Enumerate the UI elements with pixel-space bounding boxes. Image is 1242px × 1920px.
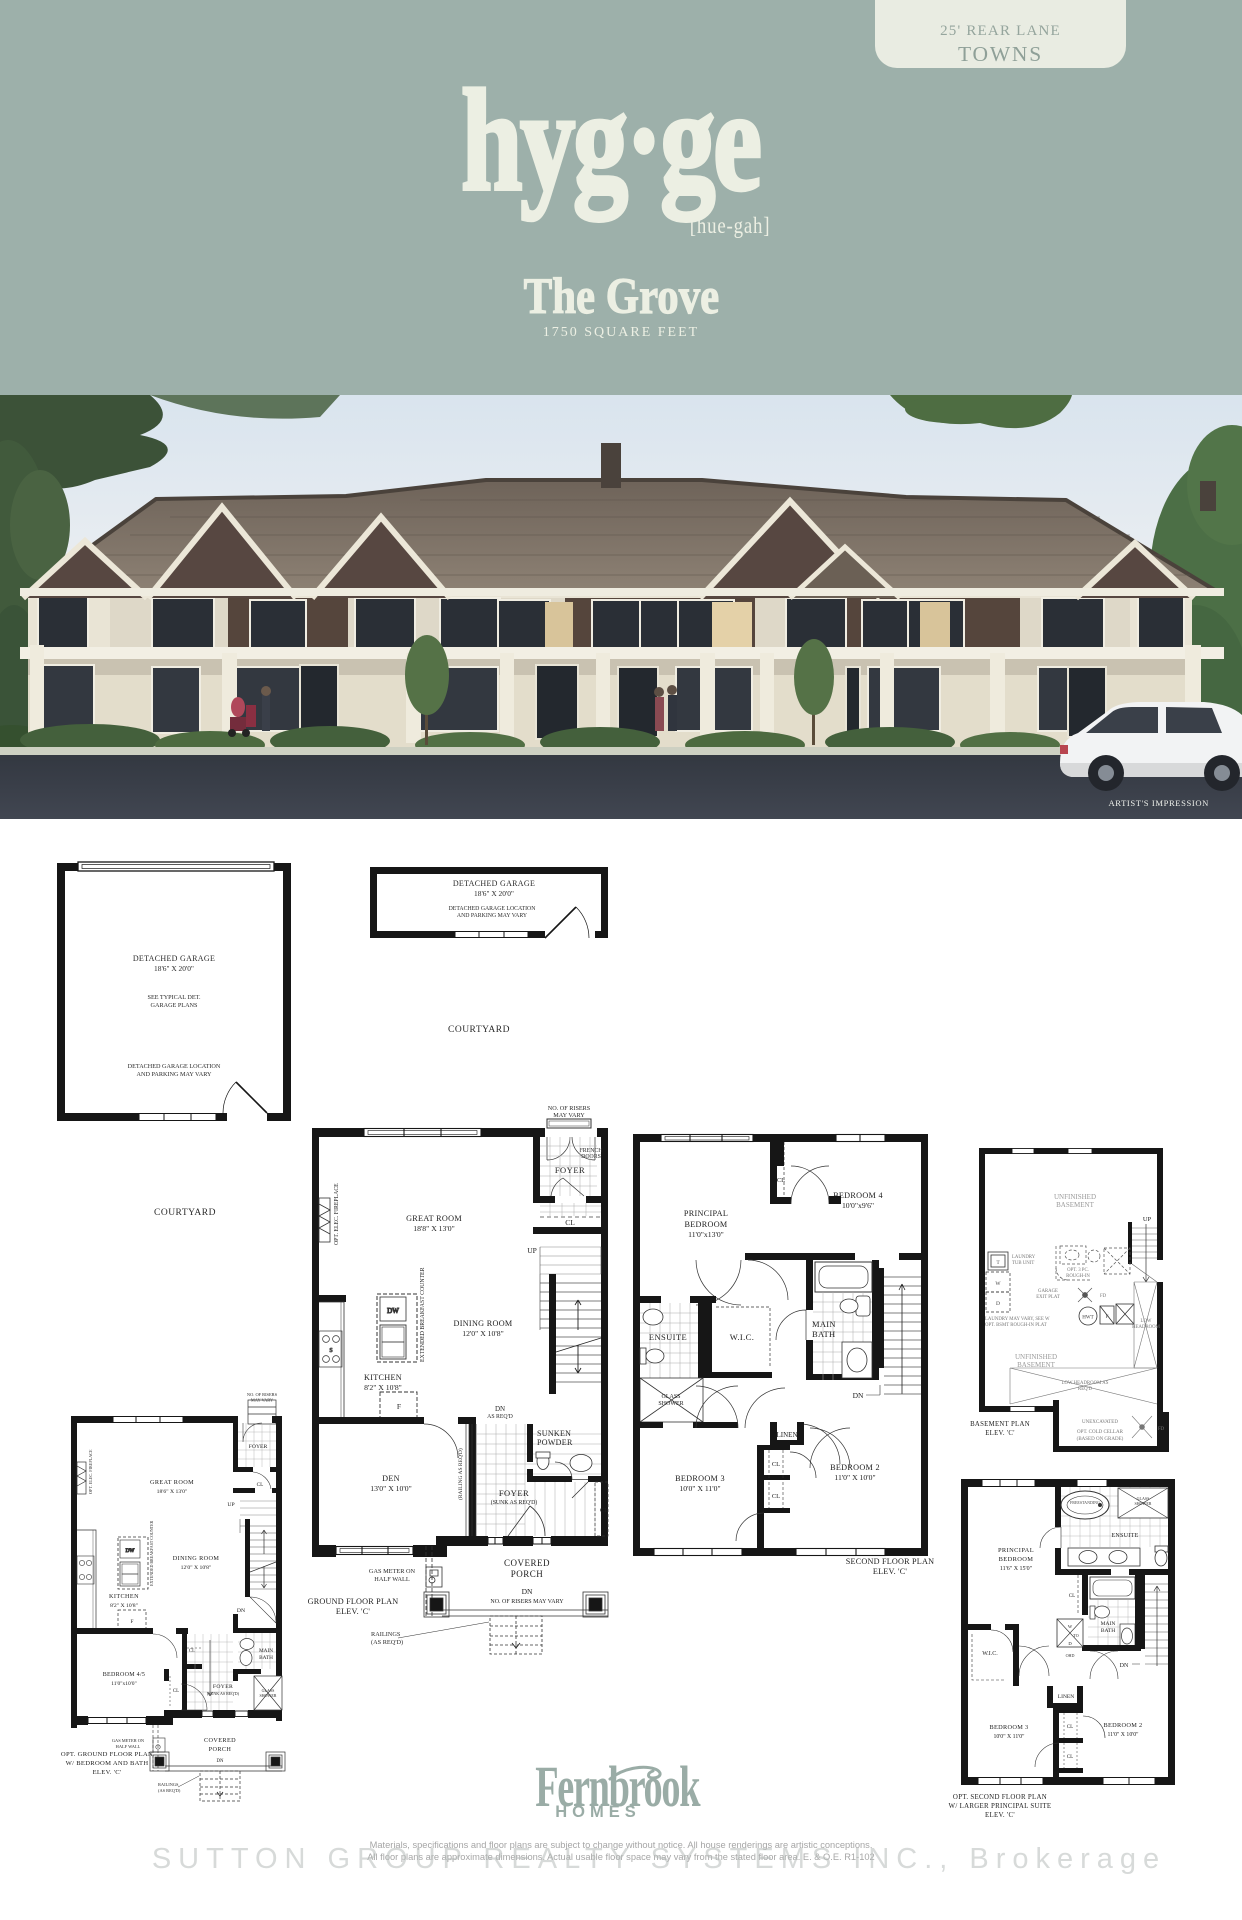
svg-text:ELEV. 'C': ELEV. 'C' [985, 1430, 1015, 1437]
svg-text:GREAT ROOM: GREAT ROOM [150, 1479, 194, 1486]
svg-text:SHOWER: SHOWER [260, 1693, 277, 1698]
svg-text:OPT. ELEC. FIREPLACE: OPT. ELEC. FIREPLACE [334, 1183, 340, 1245]
svg-text:DN: DN [495, 1405, 505, 1413]
svg-text:10'0"x9'6": 10'0"x9'6" [842, 1201, 874, 1210]
svg-text:11'6" X 15'0": 11'6" X 15'0" [1000, 1566, 1033, 1572]
svg-text:DETACHED GARAGE LOCATION: DETACHED GARAGE LOCATION [128, 1063, 221, 1070]
svg-text:10'0" X 11'0": 10'0" X 11'0" [993, 1734, 1024, 1740]
svg-text:18'6" X 20'0": 18'6" X 20'0" [154, 964, 194, 973]
svg-text:LINEN: LINEN [777, 1431, 798, 1439]
svg-text:FD: FD [1158, 1427, 1165, 1432]
svg-text:KITCHEN: KITCHEN [364, 1373, 402, 1382]
svg-text:CL: CL [600, 1507, 608, 1514]
svg-text:ELEV. 'C': ELEV. 'C' [985, 1812, 1015, 1819]
svg-text:CL: CL [189, 1649, 195, 1654]
svg-text:11'0"x13'0": 11'0"x13'0" [688, 1230, 724, 1239]
svg-text:FREESTANDING: FREESTANDING [1070, 1500, 1100, 1505]
svg-text:W/ LARGER PRINCIPAL SUITE: W/ LARGER PRINCIPAL SUITE [949, 1803, 1052, 1810]
svg-text:CL: CL [565, 1218, 575, 1227]
svg-text:BASEMENT: BASEMENT [1056, 1201, 1094, 1209]
svg-text:S: S [329, 1348, 332, 1354]
svg-text:PORCH: PORCH [209, 1746, 232, 1753]
svg-text:D: D [996, 1301, 1000, 1307]
svg-text:CL: CL [257, 1482, 264, 1488]
svg-text:COVERED: COVERED [204, 1737, 236, 1744]
svg-text:HALF WALL: HALF WALL [116, 1744, 141, 1749]
svg-text:F: F [397, 1402, 401, 1411]
svg-text:BEDROOM 3: BEDROOM 3 [990, 1724, 1029, 1731]
svg-text:11'0"x10'0": 11'0"x10'0" [111, 1681, 137, 1687]
svg-text:BEDROOM: BEDROOM [999, 1556, 1034, 1563]
svg-text:EXTENDED BREAKFAST COUNTER: EXTENDED BREAKFAST COUNTER [420, 1267, 426, 1362]
svg-text:NO. OF RISERS MAY VARY: NO. OF RISERS MAY VARY [490, 1599, 564, 1605]
svg-text:LAUNDRY MAY VARY, SEE W: LAUNDRY MAY VARY, SEE W [985, 1317, 1050, 1322]
svg-text:FOYER: FOYER [499, 1488, 529, 1498]
svg-text:FOYER: FOYER [213, 1684, 233, 1690]
svg-text:FOYER: FOYER [249, 1444, 268, 1450]
svg-text:W: W [995, 1281, 1001, 1287]
svg-text:LINEN: LINEN [1058, 1694, 1075, 1700]
svg-text:CL: CL [772, 1461, 780, 1468]
svg-text:18'8" X 13'0": 18'8" X 13'0" [413, 1224, 455, 1233]
svg-text:8'2" X 10'8": 8'2" X 10'8" [364, 1383, 402, 1392]
svg-text:GROUND FLOOR PLAN: GROUND FLOOR PLAN [308, 1597, 399, 1606]
svg-text:SUNKEN: SUNKEN [537, 1429, 571, 1438]
svg-text:GARAGE: GARAGE [1038, 1289, 1058, 1294]
svg-text:CL: CL [777, 1177, 785, 1184]
svg-text:UP: UP [527, 1246, 537, 1255]
svg-text:(RAILING AS REQ'D): (RAILING AS REQ'D) [457, 1448, 464, 1500]
svg-text:18'6" X 20'0": 18'6" X 20'0" [474, 889, 514, 898]
svg-text:10'0" X 11'0": 10'0" X 11'0" [679, 1484, 720, 1493]
svg-text:W.I.C.: W.I.C. [730, 1332, 755, 1342]
svg-text:CL: CL [1067, 1754, 1074, 1760]
svg-text:(AS REQ'D): (AS REQ'D) [371, 1639, 403, 1646]
svg-text:BATH: BATH [259, 1655, 273, 1661]
svg-text:BEDROOM 3: BEDROOM 3 [675, 1474, 725, 1483]
svg-text:EXIT PLAT: EXIT PLAT [1036, 1295, 1060, 1300]
svg-text:TO: TO [1073, 1633, 1078, 1638]
svg-text:UNFINISHED: UNFINISHED [1054, 1193, 1096, 1201]
svg-text:SHOWER: SHOWER [1135, 1501, 1152, 1506]
svg-text:GREAT ROOM: GREAT ROOM [406, 1214, 462, 1223]
svg-text:SEE TYPICAL DET.: SEE TYPICAL DET. [148, 994, 201, 1001]
svg-text:BEDROOM 4/5: BEDROOM 4/5 [103, 1672, 145, 1678]
svg-text:F: F [131, 1619, 134, 1625]
svg-text:REQ'D: REQ'D [1078, 1387, 1092, 1392]
svg-text:RAILINGS: RAILINGS [158, 1782, 179, 1787]
svg-text:DW: DW [126, 1548, 135, 1554]
svg-text:DN: DN [522, 1587, 533, 1596]
svg-text:OPT. COLD CELLAR: OPT. COLD CELLAR [1077, 1430, 1124, 1435]
svg-text:MAIN: MAIN [812, 1319, 836, 1329]
svg-text:DN: DN [237, 1608, 245, 1614]
svg-text:CL: CL [1069, 1593, 1076, 1599]
svg-text:SHOWER: SHOWER [658, 1401, 683, 1407]
svg-text:CL: CL [1067, 1724, 1074, 1730]
svg-text:W.I.C.: W.I.C. [982, 1651, 998, 1657]
svg-text:DN: DN [217, 1759, 224, 1764]
svg-text:ELEV. 'C': ELEV. 'C' [336, 1607, 370, 1616]
svg-text:FOYER: FOYER [555, 1165, 585, 1175]
svg-text:DEN: DEN [382, 1474, 400, 1483]
svg-text:11'0" X 10'0": 11'0" X 10'0" [1107, 1732, 1138, 1738]
svg-text:BEDROOM 2: BEDROOM 2 [1104, 1722, 1143, 1729]
svg-text:DINING ROOM: DINING ROOM [453, 1319, 512, 1328]
svg-text:KITCHEN: KITCHEN [109, 1593, 139, 1600]
svg-text:FD: FD [1100, 1294, 1107, 1299]
svg-text:UNEXCAVATED: UNEXCAVATED [1082, 1420, 1118, 1425]
svg-text:LOW HEADROOM AS: LOW HEADROOM AS [1062, 1381, 1109, 1386]
svg-text:SECOND FLOOR PLAN: SECOND FLOOR PLAN [846, 1557, 934, 1566]
svg-text:MAY VARY: MAY VARY [553, 1112, 585, 1119]
svg-text:W/ BEDROOM AND BATH: W/ BEDROOM AND BATH [66, 1760, 149, 1767]
svg-text:UP: UP [1143, 1216, 1152, 1223]
svg-text:12'0" X 10'8": 12'0" X 10'8" [462, 1329, 504, 1338]
svg-text:CL: CL [173, 1689, 179, 1694]
svg-text:(SUNK AS REQ'D): (SUNK AS REQ'D) [491, 1499, 538, 1506]
svg-text:DINING ROOM: DINING ROOM [173, 1555, 220, 1562]
svg-text:AND PARKING MAY VARY: AND PARKING MAY VARY [457, 913, 528, 919]
svg-text:DETACHED GARAGE LOCATION: DETACHED GARAGE LOCATION [449, 906, 537, 912]
svg-text:PRINCIPAL: PRINCIPAL [998, 1547, 1034, 1554]
svg-text:GAS METER ON: GAS METER ON [369, 1568, 416, 1575]
svg-text:(AS REQ'D): (AS REQ'D) [158, 1788, 181, 1793]
svg-text:BASEMENT PLAN: BASEMENT PLAN [970, 1421, 1030, 1428]
svg-text:ARTIST'S IMPRESSION: ARTIST'S IMPRESSION [1108, 798, 1209, 808]
svg-text:HWT: HWT [1082, 1316, 1093, 1321]
svg-text:HEADROOM: HEADROOM [1132, 1325, 1160, 1330]
svg-text:(BASED ON GRADE): (BASED ON GRADE) [1077, 1437, 1124, 1442]
svg-text:DETACHED GARAGE: DETACHED GARAGE [453, 879, 535, 888]
svg-text:ELEV. 'C': ELEV. 'C' [93, 1769, 122, 1776]
svg-text:DW: DW [387, 1307, 399, 1315]
svg-text:OHD: OHD [1066, 1653, 1075, 1658]
svg-text:MAY VARY: MAY VARY [251, 1398, 274, 1403]
svg-text:TUB UNIT: TUB UNIT [1012, 1261, 1034, 1266]
svg-text:BATH: BATH [812, 1329, 835, 1339]
svg-text:BEDROOM 2: BEDROOM 2 [830, 1463, 880, 1472]
svg-text:EXTENDED BREAKFAST COUNTER: EXTENDED BREAKFAST COUNTER [149, 1520, 154, 1586]
svg-text:F: F [1106, 1315, 1109, 1320]
svg-text:AS REQ'D: AS REQ'D [487, 1414, 513, 1420]
svg-text:MAIN: MAIN [1101, 1621, 1116, 1627]
svg-text:18'6" X 13'0": 18'6" X 13'0" [157, 1489, 188, 1495]
svg-text:OPT. SECOND FLOOR PLAN: OPT. SECOND FLOOR PLAN [953, 1794, 1047, 1801]
svg-text:PORCH: PORCH [511, 1569, 544, 1579]
svg-text:ENSUITE: ENSUITE [1111, 1533, 1138, 1539]
svg-text:T: T [996, 1260, 1000, 1266]
svg-text:DOORS: DOORS [581, 1154, 601, 1160]
svg-text:OPT. BSMT ROUGH-IN PLAT: OPT. BSMT ROUGH-IN PLAT [985, 1323, 1047, 1328]
svg-text:CL: CL [772, 1493, 780, 1500]
svg-text:ROUGH-IN: ROUGH-IN [1066, 1274, 1090, 1279]
svg-text:UNFINISHED: UNFINISHED [1015, 1353, 1057, 1361]
svg-text:OPT. ELEC. FIREPLACE: OPT. ELEC. FIREPLACE [88, 1449, 93, 1494]
svg-text:13'0" X 10'0": 13'0" X 10'0" [370, 1484, 412, 1493]
svg-text:HALF WALL: HALF WALL [374, 1576, 410, 1583]
svg-text:W: W [1068, 1624, 1073, 1629]
svg-text:POWDER: POWDER [537, 1438, 573, 1447]
svg-text:OPT. GROUND FLOOR PLAN: OPT. GROUND FLOOR PLAN [61, 1751, 153, 1758]
svg-text:MAIN: MAIN [259, 1648, 273, 1654]
svg-text:BEDROOM: BEDROOM [684, 1220, 727, 1229]
svg-text:BATH: BATH [1101, 1628, 1115, 1634]
svg-text:LOW: LOW [1141, 1319, 1152, 1324]
svg-text:UP: UP [227, 1502, 234, 1508]
svg-text:GAS METER ON: GAS METER ON [112, 1738, 145, 1743]
svg-text:DN: DN [853, 1391, 864, 1400]
svg-text:OPT. 3 PC.: OPT. 3 PC. [1067, 1268, 1089, 1273]
svg-text:GLASS: GLASS [661, 1394, 680, 1400]
svg-text:8'2" X 10'8": 8'2" X 10'8" [110, 1603, 138, 1609]
svg-text:DETACHED GARAGE: DETACHED GARAGE [133, 954, 215, 963]
svg-text:ELEV. 'C': ELEV. 'C' [873, 1567, 907, 1576]
svg-text:LAUNDRY: LAUNDRY [1012, 1255, 1036, 1260]
svg-text:11'0" X 10'0": 11'0" X 10'0" [834, 1473, 875, 1482]
svg-text:GARAGE PLANS: GARAGE PLANS [151, 1002, 198, 1009]
svg-text:RAILINGS: RAILINGS [371, 1631, 401, 1638]
svg-text:12'0" X 10'8": 12'0" X 10'8" [181, 1565, 212, 1571]
svg-text:ENSUITE: ENSUITE [649, 1332, 687, 1342]
svg-text:NO. OF RISERS: NO. OF RISERS [247, 1392, 278, 1397]
svg-text:PRINCIPAL: PRINCIPAL [684, 1209, 728, 1218]
svg-text:NO. OF RISERS: NO. OF RISERS [548, 1105, 591, 1112]
svg-text:AND PARKING MAY VARY: AND PARKING MAY VARY [137, 1071, 212, 1078]
svg-text:COVERED: COVERED [504, 1558, 550, 1568]
svg-text:DN: DN [1120, 1663, 1129, 1669]
